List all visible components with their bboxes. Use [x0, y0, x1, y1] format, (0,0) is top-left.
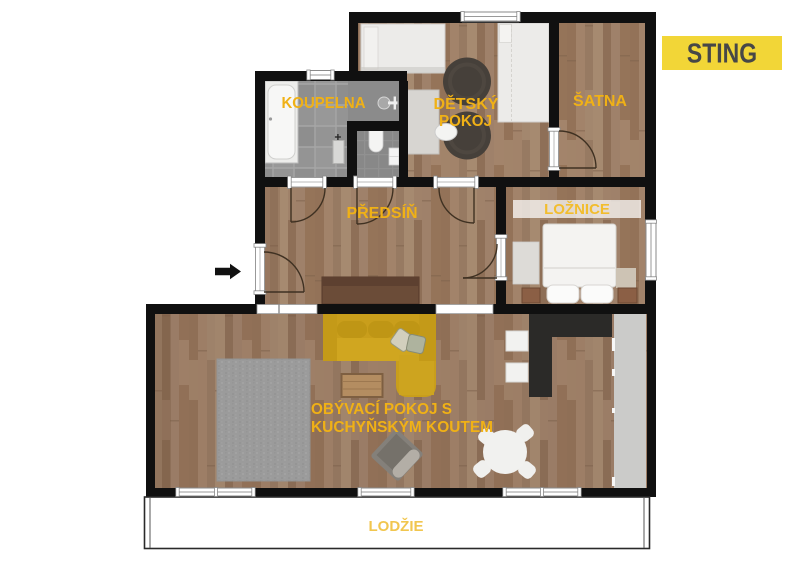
svg-text:PŘEDSÍŇ: PŘEDSÍŇ: [346, 203, 417, 222]
svg-text:LOŽNICE: LOŽNICE: [544, 200, 610, 218]
svg-text:KUCHYŇSKÝM KOUTEM: KUCHYŇSKÝM KOUTEM: [311, 417, 493, 436]
svg-text:POKOJ: POKOJ: [439, 113, 492, 130]
svg-text:STING: STING: [687, 38, 757, 69]
svg-text:KOUPELNA: KOUPELNA: [282, 95, 366, 112]
svg-text:LODŽIE: LODŽIE: [369, 517, 424, 535]
svg-text:ŠATNA: ŠATNA: [573, 91, 627, 110]
svg-text:DĚTSKÝ: DĚTSKÝ: [434, 94, 499, 113]
svg-text:OBÝVACÍ POKOJ S: OBÝVACÍ POKOJ S: [311, 399, 452, 418]
